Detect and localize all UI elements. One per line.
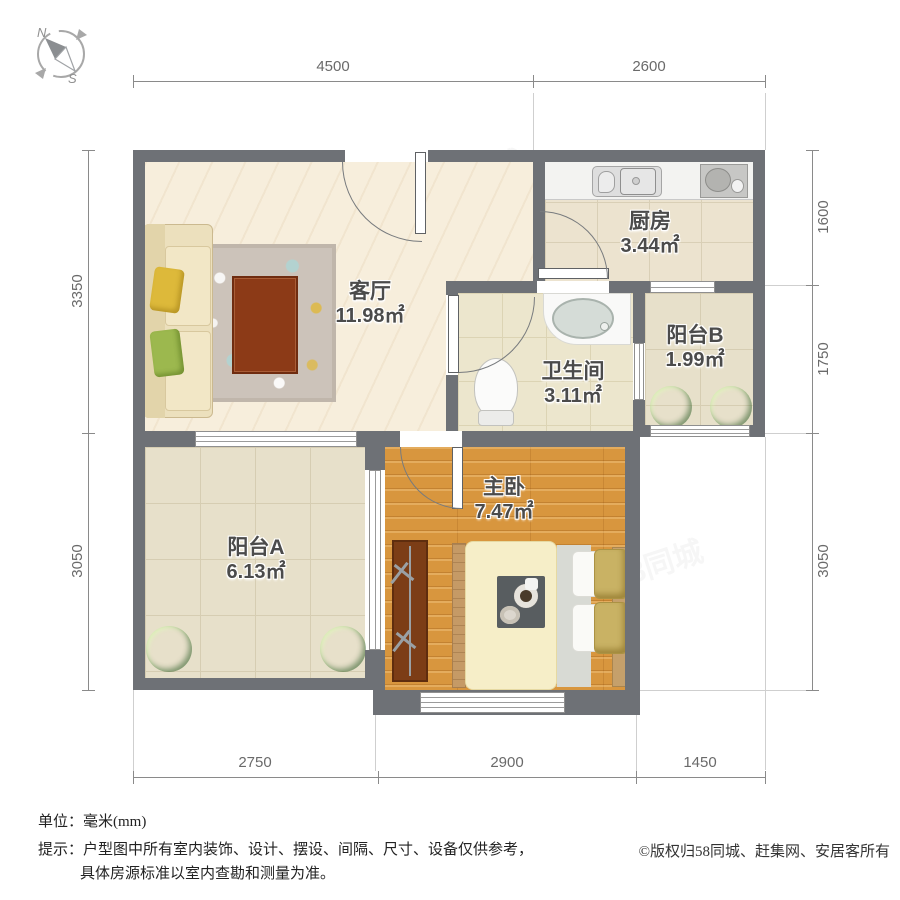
bed-footboard: [452, 543, 466, 688]
wall: [446, 281, 533, 293]
tray-cup: [525, 578, 538, 590]
footer-copyright: ©版权归58同城、赶集网、安居客所有: [555, 842, 890, 862]
sink-faucet: [600, 322, 609, 331]
room-name: 主卧: [434, 476, 574, 500]
wall: [625, 437, 640, 715]
room-name: 客厅: [300, 280, 440, 304]
dimension-tick: [806, 690, 819, 691]
compass-icon: N S: [24, 18, 98, 92]
dimension-label: 3350: [68, 241, 88, 341]
bed-pillow-gold: [594, 602, 628, 654]
extension-line: [765, 437, 766, 770]
kettle: [731, 179, 744, 193]
dimension-tick: [533, 75, 534, 88]
wall: [357, 431, 400, 447]
wall: [462, 431, 640, 447]
footer-tip-line2: 具体房源标准以室内查勘和测量为准。: [80, 864, 335, 884]
kitchen-balcony-window: [650, 281, 715, 293]
dimension-label: 4500: [233, 57, 433, 77]
dimension-label: 1600: [814, 167, 834, 267]
wall: [133, 678, 373, 690]
wall: [753, 150, 765, 437]
room-name: 阳台A: [186, 536, 326, 560]
compass-south-label: S: [68, 71, 77, 86]
dimension-label: 1450: [600, 753, 800, 773]
plant: [146, 626, 192, 672]
dimension-tick: [82, 690, 95, 691]
dimension-label: 1750: [814, 309, 834, 409]
plant: [650, 386, 692, 428]
dimension-tick: [806, 150, 819, 151]
dimension-label: 2750: [155, 753, 355, 773]
kitchen-door-opening: [537, 281, 609, 293]
footer-tip-line1: 提示：户型图中所有室内装饰、设计、摆设、间隔、尺寸、设备仅供参考，: [38, 840, 533, 860]
room-label-balcony-a: 阳台A 6.13㎡: [186, 536, 326, 584]
dimension-tick: [82, 150, 95, 151]
room-label-bedroom: 主卧 7.47㎡: [434, 476, 574, 524]
sofa-pillow-yellow: [149, 266, 185, 314]
room-label-bathroom: 卫生间 3.11㎡: [503, 360, 643, 408]
extension-line: [375, 715, 376, 771]
wall: [446, 375, 458, 437]
wall: [133, 150, 345, 162]
dimension-line-top: [133, 81, 766, 82]
balcony-b-window: [650, 425, 750, 437]
wall: [133, 150, 145, 690]
wall: [428, 150, 765, 162]
dimension-tick: [378, 771, 379, 784]
dimension-label: 3050: [814, 511, 834, 611]
dimension-label: 3050: [68, 511, 88, 611]
room-area: 3.11㎡: [503, 384, 643, 408]
dimension-tick: [806, 285, 819, 286]
sofa-backrest: [143, 224, 165, 418]
wall: [609, 281, 650, 293]
room-area: 6.13㎡: [186, 560, 326, 584]
wardrobe-rail: [409, 546, 411, 676]
plant: [710, 386, 752, 428]
wall: [446, 281, 458, 295]
room-area: 1.99㎡: [625, 348, 765, 372]
dimension-tick: [806, 433, 819, 434]
dimension-tick: [133, 75, 134, 88]
bedroom-door-opening: [400, 431, 462, 447]
dimension-label: 2600: [549, 57, 749, 77]
dimension-line-left: [88, 150, 89, 691]
room-area: 7.47㎡: [434, 500, 574, 524]
dimension-tick: [765, 75, 766, 88]
plant: [320, 626, 366, 672]
bathroom-sink: [552, 298, 614, 339]
bed-pillow-gold: [594, 549, 628, 599]
room-label-balcony-b: 阳台B 1.99㎡: [625, 324, 765, 372]
extension-line: [765, 285, 812, 286]
extension-line: [133, 690, 134, 771]
bedroom-balcony-window: [369, 470, 381, 650]
wall: [750, 425, 765, 437]
extension-line: [765, 433, 812, 434]
footer-unit-note: 单位：毫米(mm): [38, 812, 146, 832]
wall: [133, 431, 195, 447]
dimension-tick: [133, 771, 134, 784]
extension-line: [640, 690, 812, 691]
room-area: 11.98㎡: [300, 304, 440, 328]
wall: [715, 281, 765, 293]
room-label-kitchen: 厨房 3.44㎡: [580, 210, 720, 258]
tray-bowl: [500, 606, 520, 624]
room-name: 阳台B: [625, 324, 765, 348]
dimension-tick: [82, 433, 95, 434]
compass-north-label: N: [37, 25, 47, 40]
sink-drain: [632, 177, 640, 185]
wall: [365, 447, 385, 470]
sink-basin-small: [598, 171, 615, 193]
floor-plan-image: N S 58同城 58同城 58同城 58同城 58同城: [0, 0, 900, 900]
bay-window: [420, 692, 565, 713]
dimension-line-right: [812, 150, 813, 691]
extension-line: [533, 93, 534, 150]
room-area: 3.44㎡: [580, 234, 720, 258]
room-label-living: 客厅 11.98㎡: [300, 280, 440, 328]
stove-burner: [705, 168, 731, 192]
dimension-line-bottom: [133, 777, 766, 778]
bathroom-door-leaf: [448, 295, 459, 373]
coffee-table: [232, 276, 298, 374]
extension-line: [765, 93, 766, 150]
balcony-a-sliding-window: [195, 431, 357, 447]
room-name: 卫生间: [503, 360, 643, 384]
toilet-base: [478, 410, 514, 426]
dimension-label: 2900: [407, 753, 607, 773]
room-name: 厨房: [580, 210, 720, 234]
sofa-pillow-green: [149, 328, 184, 377]
